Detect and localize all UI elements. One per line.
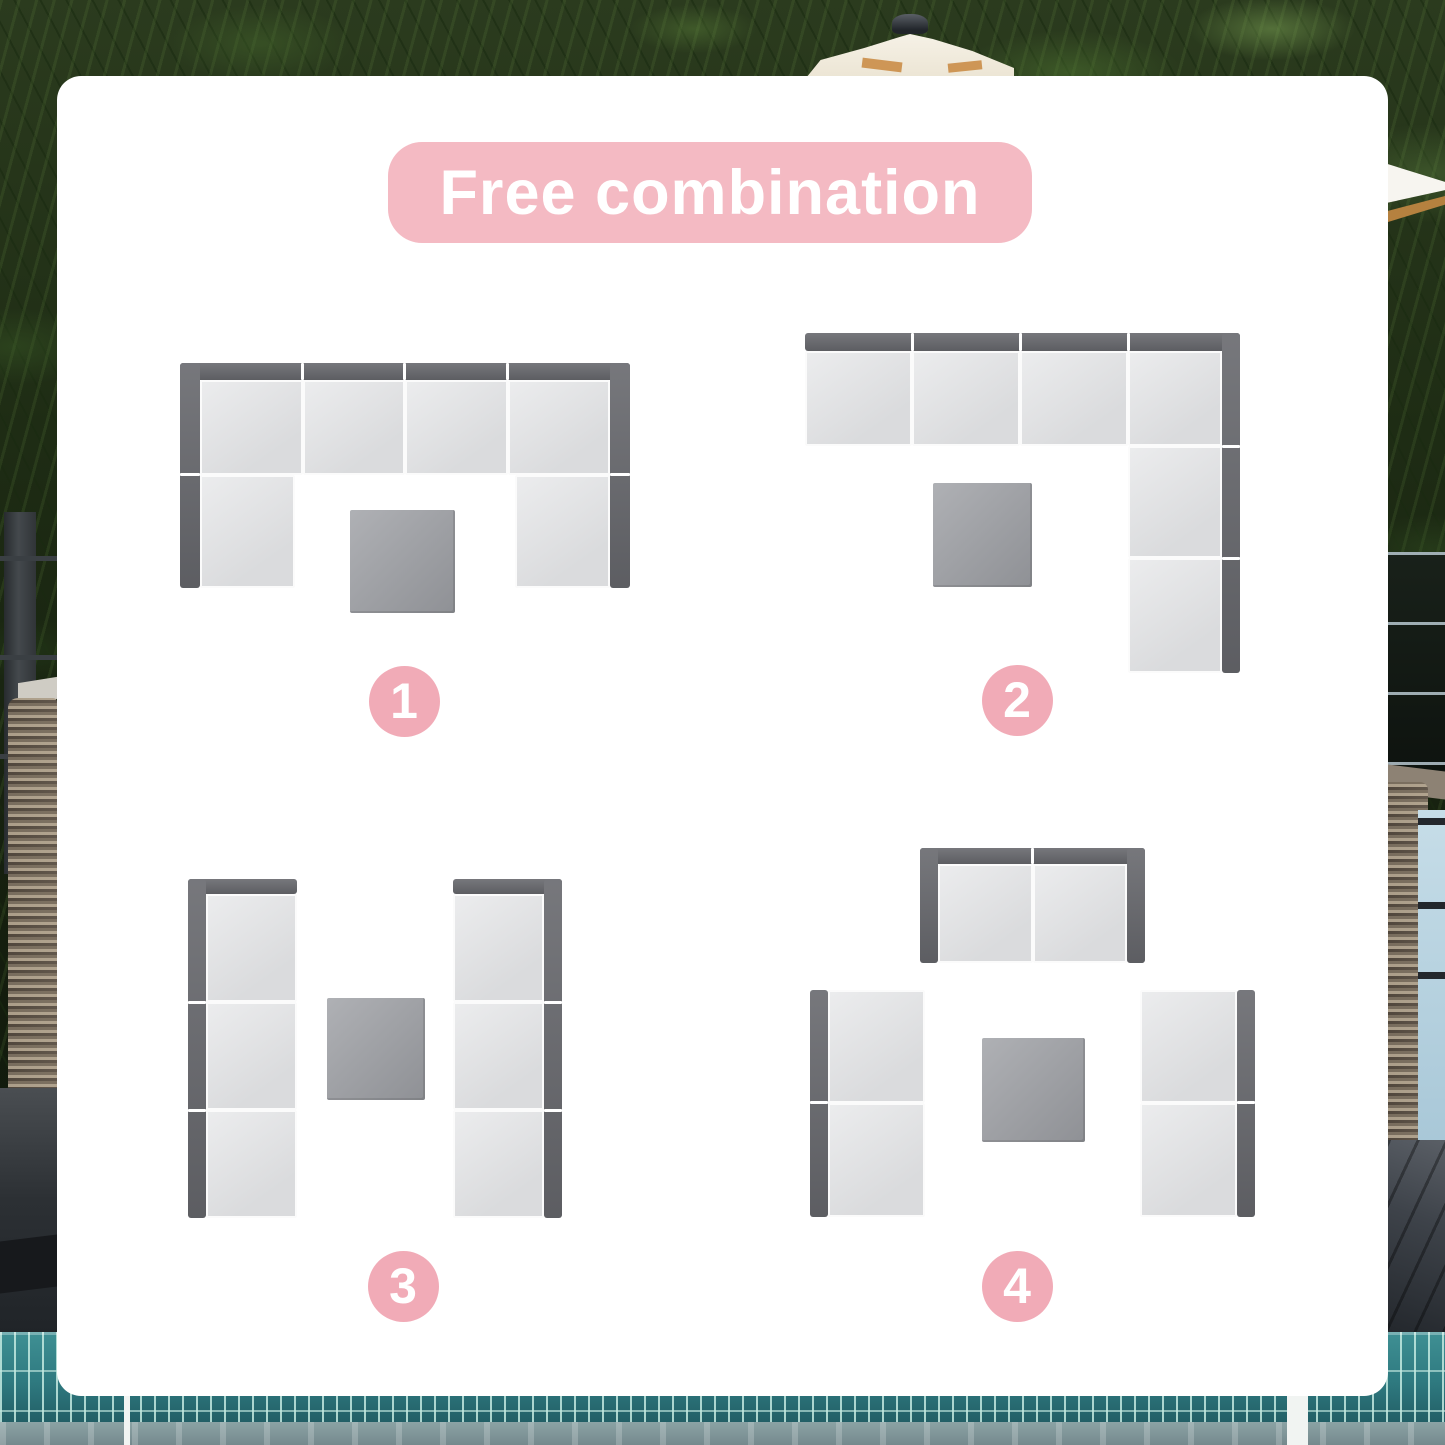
frame-seam	[188, 1001, 206, 1004]
seat-cushion	[1033, 864, 1127, 963]
seat-cushion	[1140, 1103, 1237, 1217]
seat-cushion	[805, 351, 912, 446]
combination-number-badge-4: 4	[982, 1251, 1053, 1322]
coffee-table	[327, 998, 425, 1100]
frame-seam	[1222, 445, 1240, 448]
seat-cushion	[206, 1002, 297, 1110]
coffee-table	[350, 510, 455, 613]
frame-seam	[544, 1001, 562, 1004]
seat-cushion	[912, 351, 1020, 446]
seat-cushion	[206, 894, 297, 1002]
frame-seam	[911, 333, 914, 351]
frame-seam	[1019, 333, 1022, 351]
frame-seam	[403, 363, 406, 380]
combination-number-badge-3: 3	[368, 1251, 439, 1322]
frame-seam	[1222, 557, 1240, 560]
coffee-table	[933, 483, 1032, 587]
backrest-right	[1222, 333, 1240, 673]
product-image: Free combination 1234	[0, 0, 1445, 1445]
armrest-right	[1127, 848, 1145, 963]
seat-cushion	[1128, 558, 1222, 673]
seat-cushion	[453, 1002, 544, 1110]
seat-cushion	[453, 894, 544, 1002]
seat-cushion	[828, 990, 925, 1103]
frame-seam	[506, 363, 509, 380]
frame-seam	[180, 473, 200, 476]
seat-cushion	[200, 475, 295, 588]
seat-cushion	[405, 380, 508, 475]
seat-cushion	[303, 380, 405, 475]
frame-seam	[301, 363, 304, 380]
frame-seam	[1237, 1101, 1255, 1104]
frame-seam	[1031, 848, 1034, 864]
seat-cushion	[828, 1103, 925, 1217]
frame-seam	[810, 1101, 828, 1104]
frame-seam	[610, 473, 630, 476]
furniture-layer: 1234	[0, 0, 1445, 1445]
frame-seam	[544, 1109, 562, 1112]
backrest-right-sofa	[544, 879, 562, 1218]
seat-cushion	[1128, 446, 1222, 558]
backrest-left-sofa	[188, 879, 206, 1218]
frame-seam	[1127, 333, 1130, 351]
seat-cushion	[1140, 990, 1237, 1103]
combination-number-badge-2: 2	[982, 665, 1053, 736]
seat-cushion	[200, 380, 303, 475]
seat-cushion	[1020, 351, 1128, 446]
seat-cushion	[515, 475, 610, 588]
seat-cushion	[938, 864, 1033, 963]
seat-cushion	[508, 380, 610, 475]
frame-seam	[188, 1109, 206, 1112]
backrest-top	[805, 333, 1240, 351]
combination-number-badge-1: 1	[369, 666, 440, 737]
armrest-left	[920, 848, 938, 963]
coffee-table	[982, 1038, 1085, 1142]
seat-cushion	[453, 1110, 544, 1218]
corner-cushion	[1128, 351, 1222, 446]
seat-cushion	[206, 1110, 297, 1218]
